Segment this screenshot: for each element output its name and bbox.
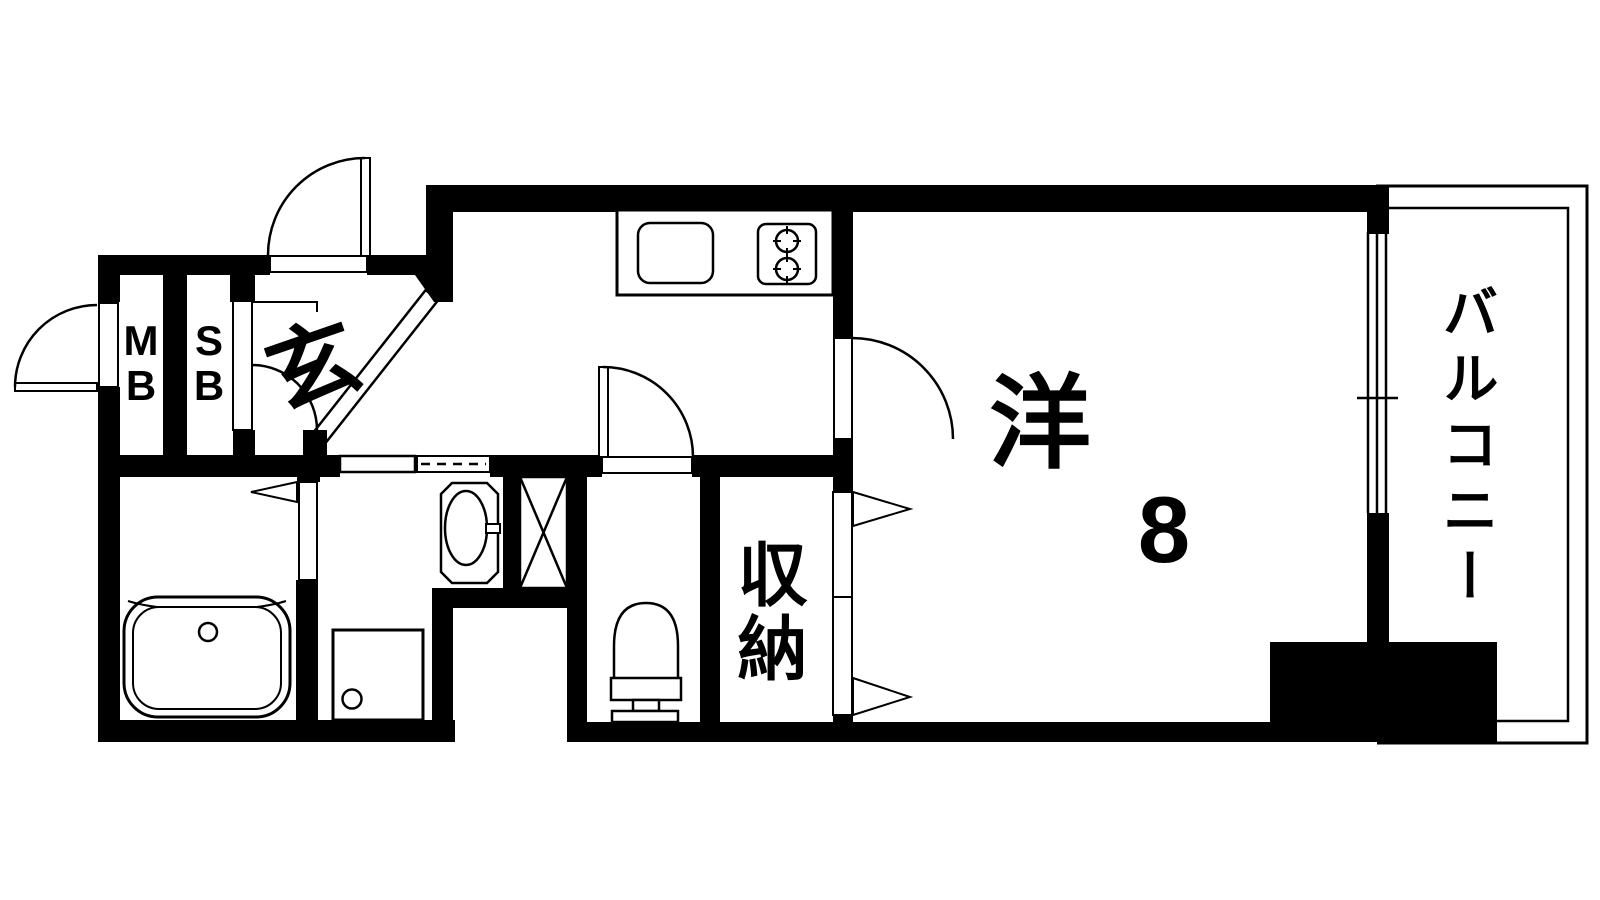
washbasin-icon [441, 483, 500, 583]
wall-segment [233, 430, 255, 457]
wall-segment [367, 255, 433, 275]
wall-segment [230, 275, 255, 302]
wall-segment [833, 212, 853, 337]
wall-segment [432, 588, 587, 608]
wall-segment [98, 275, 120, 302]
entrance-door [268, 158, 370, 272]
closet-bifold-door [833, 492, 910, 715]
wall-segment [98, 255, 270, 275]
wall-segment [567, 722, 1270, 742]
window-top-cap [1367, 212, 1389, 234]
label-room-size: 8 [1122, 480, 1206, 580]
label-meter-box: M B [112, 318, 170, 408]
wall-column-block [1270, 642, 1497, 742]
wall-segment [503, 477, 520, 588]
wall-segment [98, 720, 455, 742]
sliding-window [1357, 232, 1398, 513]
washing-machine-pan-icon [333, 630, 423, 720]
floorplan-drawing [0, 0, 1600, 900]
label-western-room: 洋 [975, 368, 1105, 480]
pipe-space-icon [520, 477, 567, 588]
stove-icon [758, 224, 816, 284]
bathtub-icon [124, 597, 290, 717]
meter-box-door [15, 303, 118, 391]
wall-segment [833, 440, 853, 492]
wall-segment [98, 387, 120, 742]
sliding-door [340, 456, 490, 472]
diagonal-partition-cap [303, 430, 327, 457]
toilet-door [599, 367, 693, 473]
wall-segment [426, 185, 1389, 212]
floorplan: M B S B 玄 洋 8 収納 バルコニー [0, 0, 1600, 900]
toilet-icon [611, 603, 681, 722]
room-door [834, 338, 953, 439]
label-shoe-box: S B [180, 318, 238, 408]
wall-segment [432, 588, 453, 742]
wall-segment [692, 455, 833, 477]
window-bottom-cap [1367, 513, 1389, 642]
label-balcony: バルコニー [1449, 268, 1507, 628]
wall-segment [296, 580, 318, 720]
wall-segment [297, 455, 320, 482]
label-storage: 収納 [740, 522, 818, 702]
bathroom-folding-door [251, 482, 317, 580]
